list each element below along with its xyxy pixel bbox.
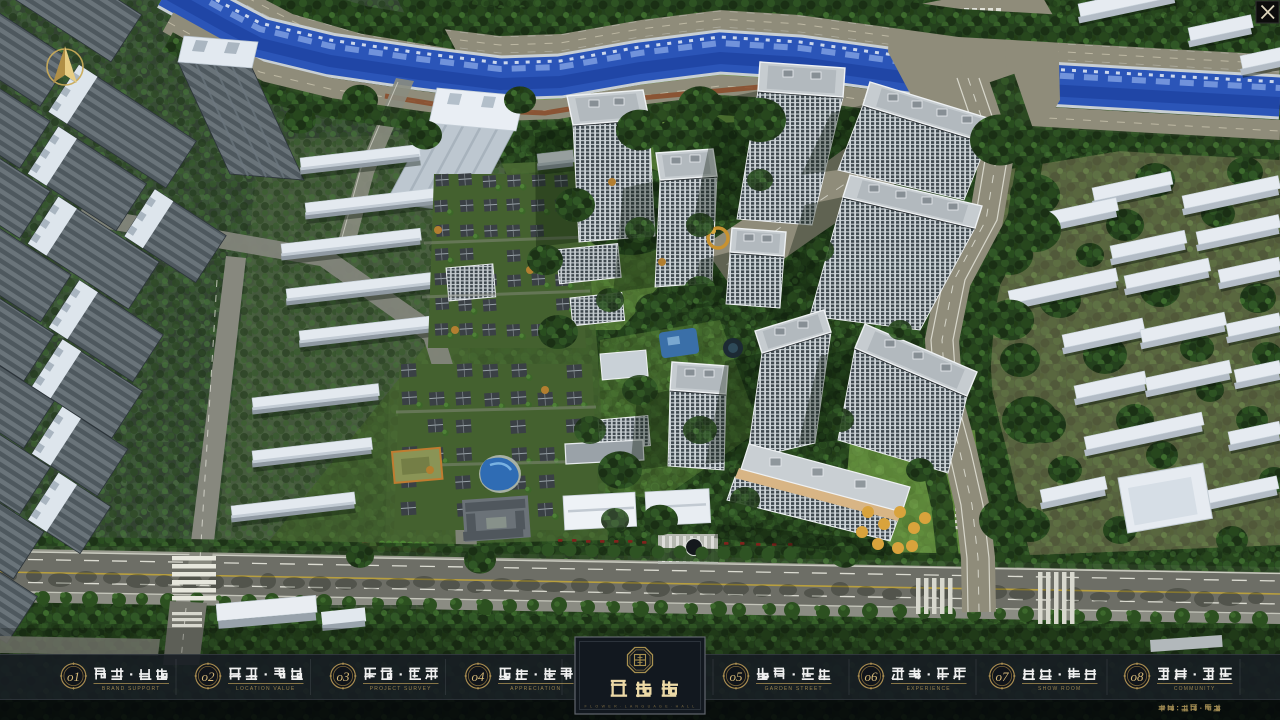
- svg-text:o1: o1: [67, 669, 80, 684]
- svg-text:COMMUNITY: COMMUNITY: [1174, 686, 1216, 692]
- svg-text:GARDEN STREET: GARDEN STREET: [765, 686, 823, 692]
- svg-text:PROJECT SURVEY: PROJECT SURVEY: [370, 686, 432, 692]
- svg-text:LOCATION VALUE: LOCATION VALUE: [236, 686, 295, 692]
- svg-text:o5: o5: [730, 669, 744, 684]
- svg-text:APPRECIATION: APPRECIATION: [510, 686, 561, 692]
- svg-text:EXPERIENCE: EXPERIENCE: [907, 686, 951, 692]
- svg-text:o3: o3: [337, 669, 351, 684]
- svg-text:F L O W E R · L A N G U A G E: F L O W E R · L A N G U A G E · H A L L: [585, 705, 696, 709]
- svg-text:o7: o7: [996, 669, 1010, 684]
- svg-text:o8: o8: [1131, 669, 1145, 684]
- svg-text:SHOW ROOM: SHOW ROOM: [1038, 686, 1081, 692]
- svg-text:o6: o6: [865, 669, 879, 684]
- svg-text:o4: o4: [472, 669, 486, 684]
- svg-text:o2: o2: [202, 669, 216, 684]
- svg-text:BRAND SUPPORT: BRAND SUPPORT: [102, 686, 161, 692]
